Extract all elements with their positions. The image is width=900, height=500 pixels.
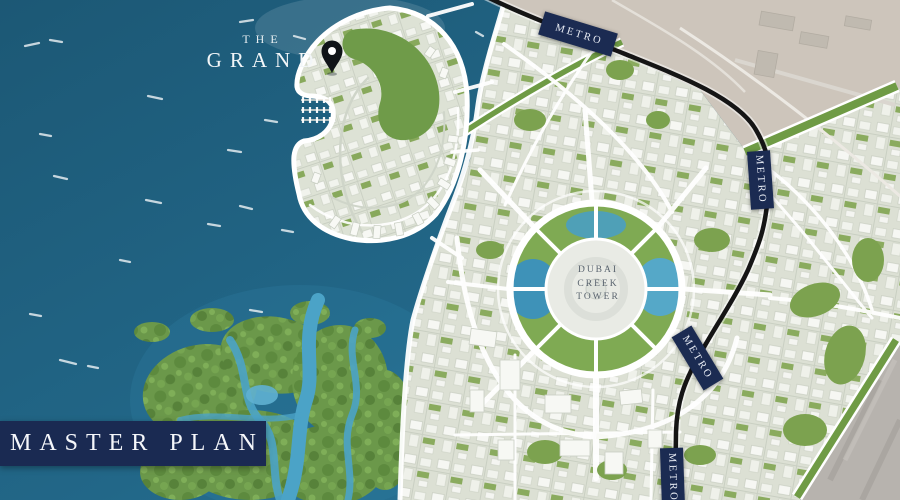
master-plan-page: THE GRAND DUBAI CREEK TOWER METRO METRO … [0,0,900,500]
metro-station-badge: METRO [747,150,774,209]
creek-tower-plaza [498,191,694,387]
metro-station-badge: METRO [660,448,685,500]
page-title-banner: MASTER PLAN [0,421,266,466]
